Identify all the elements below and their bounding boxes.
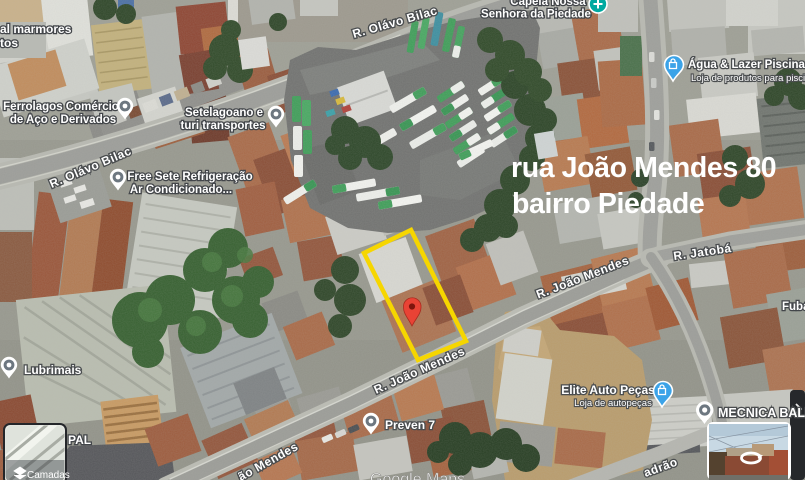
svg-text:Loja de autopeças: Loja de autopeças: [574, 398, 652, 409]
svg-text:Preven 7: Preven 7: [385, 418, 435, 432]
svg-text:turi transportes: turi transportes: [181, 120, 266, 132]
svg-text:MECNICA BALD–: MECNICA BALD–: [718, 406, 805, 420]
svg-text:Elite Auto Peças: Elite Auto Peças: [561, 383, 655, 397]
svg-text:Ar Condicionado...: Ar Condicionado...: [130, 184, 232, 196]
svg-text:rua João Mendes 80: rua João Mendes 80: [511, 152, 776, 184]
svg-text:bairro Piedade: bairro Piedade: [512, 188, 704, 220]
svg-text:PAL: PAL: [68, 433, 91, 447]
svg-text:Free Sete Refrigeração: Free Sete Refrigeração: [127, 171, 252, 183]
svg-text:Lubrimais: Lubrimais: [24, 363, 82, 377]
svg-text:Senhora da Piedade: Senhora da Piedade: [481, 9, 591, 21]
svg-text:Fubá: Fubá: [782, 301, 805, 313]
svg-text:Setelagoano e: Setelagoano e: [185, 107, 263, 119]
svg-text:al marmores: al marmores: [0, 22, 72, 36]
svg-text:Água & Lazer Piscina: Água & Lazer Piscina: [688, 58, 805, 71]
svg-text:de Aço e Derivados: de Aço e Derivados: [10, 114, 116, 126]
svg-text:Ferrolagos Comércio: Ferrolagos Comércio: [3, 101, 119, 113]
svg-text:Capela Nossa: Capela Nossa: [510, 0, 586, 8]
svg-text:Camadas: Camadas: [27, 470, 70, 480]
svg-text:Loja de produtos para piscina: Loja de produtos para piscina: [691, 73, 805, 84]
svg-text:Google Maps: Google Maps: [370, 471, 465, 480]
svg-text:tos: tos: [0, 36, 18, 50]
